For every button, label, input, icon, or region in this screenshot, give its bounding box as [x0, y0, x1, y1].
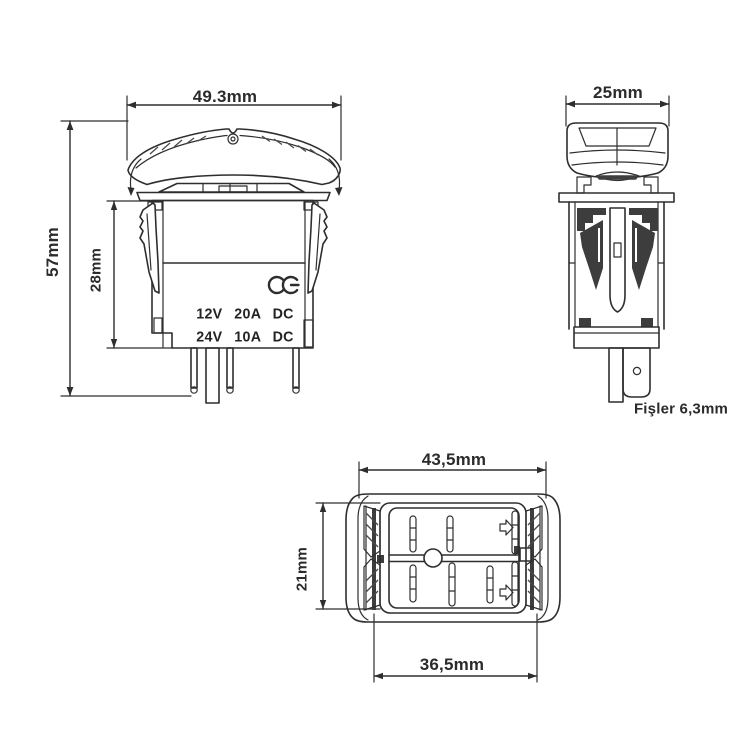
dim-label-depth: 25mm: [593, 83, 643, 103]
dim-label-inner-width: 36,5mm: [420, 655, 485, 675]
terminals-front: [191, 348, 299, 403]
actuator-post: [610, 208, 625, 312]
ce-mark-icon: [269, 277, 299, 293]
drawing-linework: [0, 0, 750, 750]
technical-drawing-canvas: 49.3mm 57mm 28mm 25mm Fişler 6,3mm 43,5m…: [0, 0, 750, 750]
rocker-actuator-side: [567, 123, 668, 178]
body-base-side: [574, 327, 659, 348]
dim-line-total-height: [61, 121, 191, 396]
dim-label-width: 49.3mm: [193, 87, 258, 107]
actuator-pivot-hole: [424, 549, 442, 567]
dim-label-outer-width: 43,5mm: [422, 450, 487, 470]
dim-label-cutout-height: 21mm: [294, 547, 311, 591]
rocker-pivot-mechanism: [159, 184, 304, 193]
terminal-base-bottom: [380, 503, 526, 613]
orientation-arrow-top: [500, 520, 513, 535]
terminals-side: [609, 348, 650, 402]
mounting-flange-front: [137, 193, 330, 201]
rating-text-line2: 24V 10A DC: [196, 329, 294, 346]
bottom-view: [316, 462, 560, 682]
mounting-flange-side: [559, 193, 674, 202]
orientation-arrow-bottom: [500, 585, 513, 600]
rocker-center-detail: [228, 134, 238, 144]
side-view: [559, 96, 674, 402]
switch-body-side: [569, 202, 664, 348]
switch-body-front: [140, 201, 327, 349]
terminal-note-label: Fişler 6,3mm: [634, 401, 728, 418]
dim-label-body-height: 28mm: [88, 248, 105, 292]
dim-label-total-height: 57mm: [43, 227, 63, 277]
rating-text-line1: 12V 20A DC: [196, 306, 294, 323]
terminal-hole: [633, 367, 640, 374]
